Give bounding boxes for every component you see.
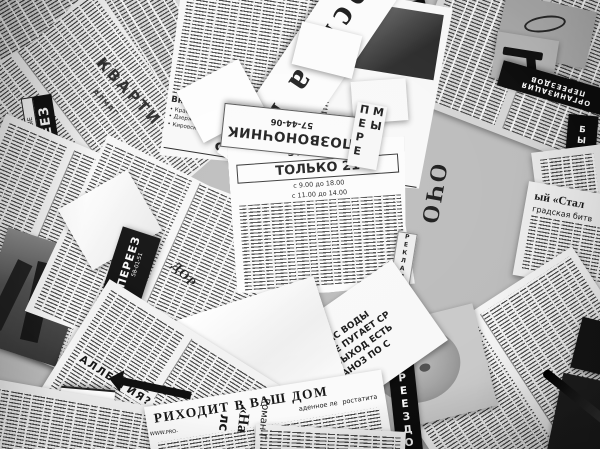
lis-caption: лс [215,413,232,432]
na-quote-caption: «На [233,405,253,433]
gun-body-shape [502,47,543,61]
newspaper-collage-photo: речи Внимание!!! • Красноармейский р-н: … [0,0,600,449]
print-texture [259,429,400,449]
